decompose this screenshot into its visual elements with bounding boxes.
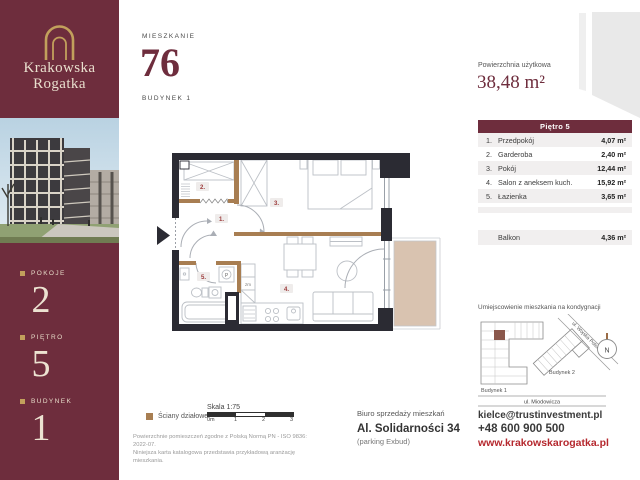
window-bedroom — [385, 178, 390, 208]
stat-building-value: 1 — [24, 409, 58, 447]
contact-phone[interactable]: +48 600 900 500 — [478, 422, 609, 436]
stat-floor-label: PIĘTRO — [20, 334, 64, 341]
arch-logo-icon — [0, 14, 119, 62]
contact-website[interactable]: www.krakowskarogatka.pl — [478, 436, 609, 450]
table-row: 5. Łazienka 3,65 m² — [478, 189, 632, 203]
hedge — [0, 237, 119, 243]
location-map: ul. Wojska Polskiego N Budynek 1 Budynek… — [476, 314, 636, 408]
shaft — [228, 296, 236, 320]
furniture — [180, 157, 380, 324]
table-row: 2. Garderoba 2,40 m² — [478, 147, 632, 161]
area-label: Powierzchnia użytkowa — [478, 62, 551, 69]
room-label-1: 1. — [219, 217, 224, 223]
map-title: Umiejscowienie mieszkania na kondygnacji — [478, 304, 601, 311]
bullet-icon — [20, 399, 25, 404]
dining-table — [284, 244, 316, 270]
entrance-marker-icon — [157, 226, 170, 245]
brand-name: Krakowska Rogatka — [0, 60, 119, 92]
dishwasher-label: zm — [245, 282, 251, 287]
table-row: 3. Pokój 12,44 m² — [478, 161, 632, 175]
contact-block: kielce@trustinvestment.pl +48 600 900 50… — [478, 410, 609, 450]
scale-ticks: 0m 1 2 3 — [207, 417, 293, 425]
balcony-door — [383, 241, 391, 308]
table-row: 4. Salon z aneksem kuch. 15,92 m² — [478, 175, 632, 189]
bullet-icon — [20, 271, 25, 276]
table-row: 1. Przedpokój 4,07 m² — [478, 133, 632, 147]
area-value: 38,48 m² — [477, 72, 545, 94]
floor-plan: 2. 1. 3. 5. 4. P zm — [140, 135, 460, 405]
building1-label: Budynek 1 — [481, 388, 507, 394]
brand-line1: Krakowska — [0, 60, 119, 76]
balcony — [392, 238, 440, 329]
balcony-row: Balkon 4,36 m² — [478, 230, 632, 245]
stat-building-label: BUDYNEK — [20, 398, 72, 405]
unit-kicker: MIESZKANIE — [142, 33, 195, 40]
stat-rooms-label: POKOJE — [20, 270, 66, 277]
brand-line2: Rogatka — [0, 76, 119, 92]
room-label-2: 2. — [200, 185, 205, 191]
sidebar: Krakowska Rogatka — [0, 0, 119, 480]
walls-legend: Ściany działowe — [146, 413, 208, 420]
folding-door-zigzag — [200, 199, 228, 203]
highlighted-unit — [494, 330, 505, 340]
room-label-5: 5. — [201, 275, 206, 281]
disclaimer: Powierzchnie pomieszczeń zgodne z Polską… — [133, 433, 323, 465]
bullet-icon — [20, 335, 25, 340]
street-horizontal-label: ul. Miodowicza — [524, 400, 561, 406]
stat-rooms-value: 2 — [24, 281, 58, 319]
stat-floor-value: 5 — [24, 345, 58, 383]
rooms-table: Piętro 5 1. Przedpokój 4,07 m² 2. Garder… — [478, 120, 632, 245]
building2-label: Budynek 2 — [549, 370, 575, 376]
brand-logo-block: Krakowska Rogatka — [0, 0, 119, 118]
unit-building: BUDYNEK 1 — [142, 95, 191, 102]
partition-swatch-icon — [146, 413, 153, 420]
building-photo — [0, 118, 119, 243]
room-label-3: 3. — [274, 201, 279, 207]
rooms-table-header: Piętro 5 — [478, 120, 632, 133]
compass-icon: N — [598, 333, 617, 359]
table-strip — [478, 207, 632, 213]
building1-footprint — [481, 322, 543, 384]
sofa — [313, 292, 373, 321]
room-label-4: 4. — [284, 287, 289, 293]
unit-number: 76 — [140, 42, 180, 84]
corner-notch — [180, 161, 189, 169]
catalog-card: Krakowska Rogatka — [0, 0, 640, 480]
sales-office: Biuro sprzedaży mieszkań Al. Solidarnośc… — [357, 409, 460, 446]
toilet — [192, 288, 202, 297]
contact-email[interactable]: kielce@trustinvestment.pl — [478, 410, 609, 422]
scale-label: Skala 1:75 — [207, 404, 240, 411]
compass-n: N — [604, 348, 609, 355]
corner-art — [576, 0, 640, 130]
